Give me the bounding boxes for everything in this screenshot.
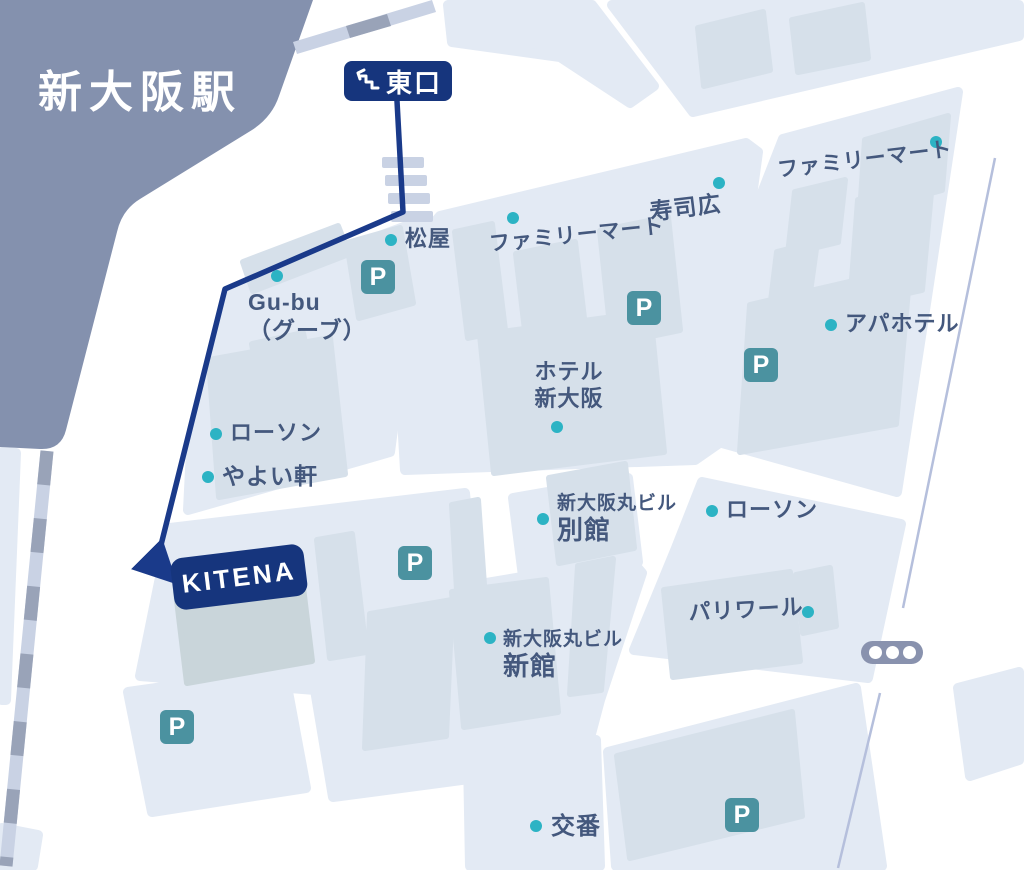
map-canvas <box>0 0 1024 870</box>
city-block <box>958 672 1019 776</box>
building <box>796 568 836 633</box>
traffic-light-icon <box>861 641 923 664</box>
access-map: 新大阪駅 東口 KITENA 松屋ファミリーマート寿司広ファミリーマートアパホテ… <box>0 0 1024 870</box>
traffic-light-dot <box>869 646 882 659</box>
east-exit-badge: 東口 <box>344 61 452 101</box>
building <box>452 500 484 590</box>
traffic-light-dot <box>886 646 899 659</box>
city-block <box>2 452 16 700</box>
crosswalk <box>382 157 433 222</box>
east-exit-label: 東口 <box>386 63 442 100</box>
building <box>209 338 345 497</box>
stairs-icon <box>354 68 380 94</box>
station-title: 新大阪駅 <box>38 56 242 120</box>
building <box>549 464 634 563</box>
kitena-label: KITENA <box>180 555 298 600</box>
building <box>698 12 770 86</box>
building <box>347 228 413 318</box>
building <box>452 580 558 727</box>
building <box>664 572 800 677</box>
railway-track-segment <box>346 14 391 38</box>
building <box>792 5 868 72</box>
city-block <box>128 670 306 812</box>
building <box>365 600 452 748</box>
traffic-light-dot <box>903 646 916 659</box>
city-block <box>468 740 600 866</box>
building <box>480 312 664 473</box>
